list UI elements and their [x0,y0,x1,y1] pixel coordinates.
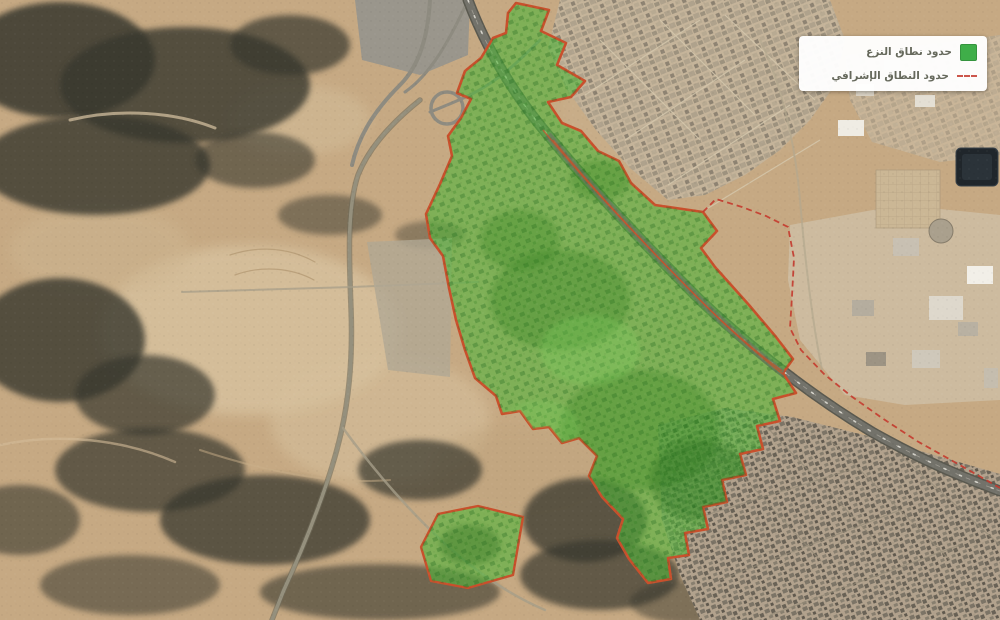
green-area-swatch-icon [960,44,977,61]
map-legend: حدود نطاق النزع حدود النطاق الإشرافي [799,36,987,91]
red-dashed-line-swatch-icon [957,75,977,77]
legend-label-supervisory-boundary: حدود النطاق الإشرافي [831,70,949,83]
image-grain [0,0,1000,620]
map-graphics [0,0,1000,620]
legend-label-expropriation-zone: حدود نطاق النزع [866,46,952,59]
satellite-map: حدود نطاق النزع حدود النطاق الإشرافي [0,0,1000,620]
legend-item-supervisory-boundary: حدود النطاق الإشرافي [809,70,977,83]
legend-item-expropriation-zone: حدود نطاق النزع [809,44,977,61]
